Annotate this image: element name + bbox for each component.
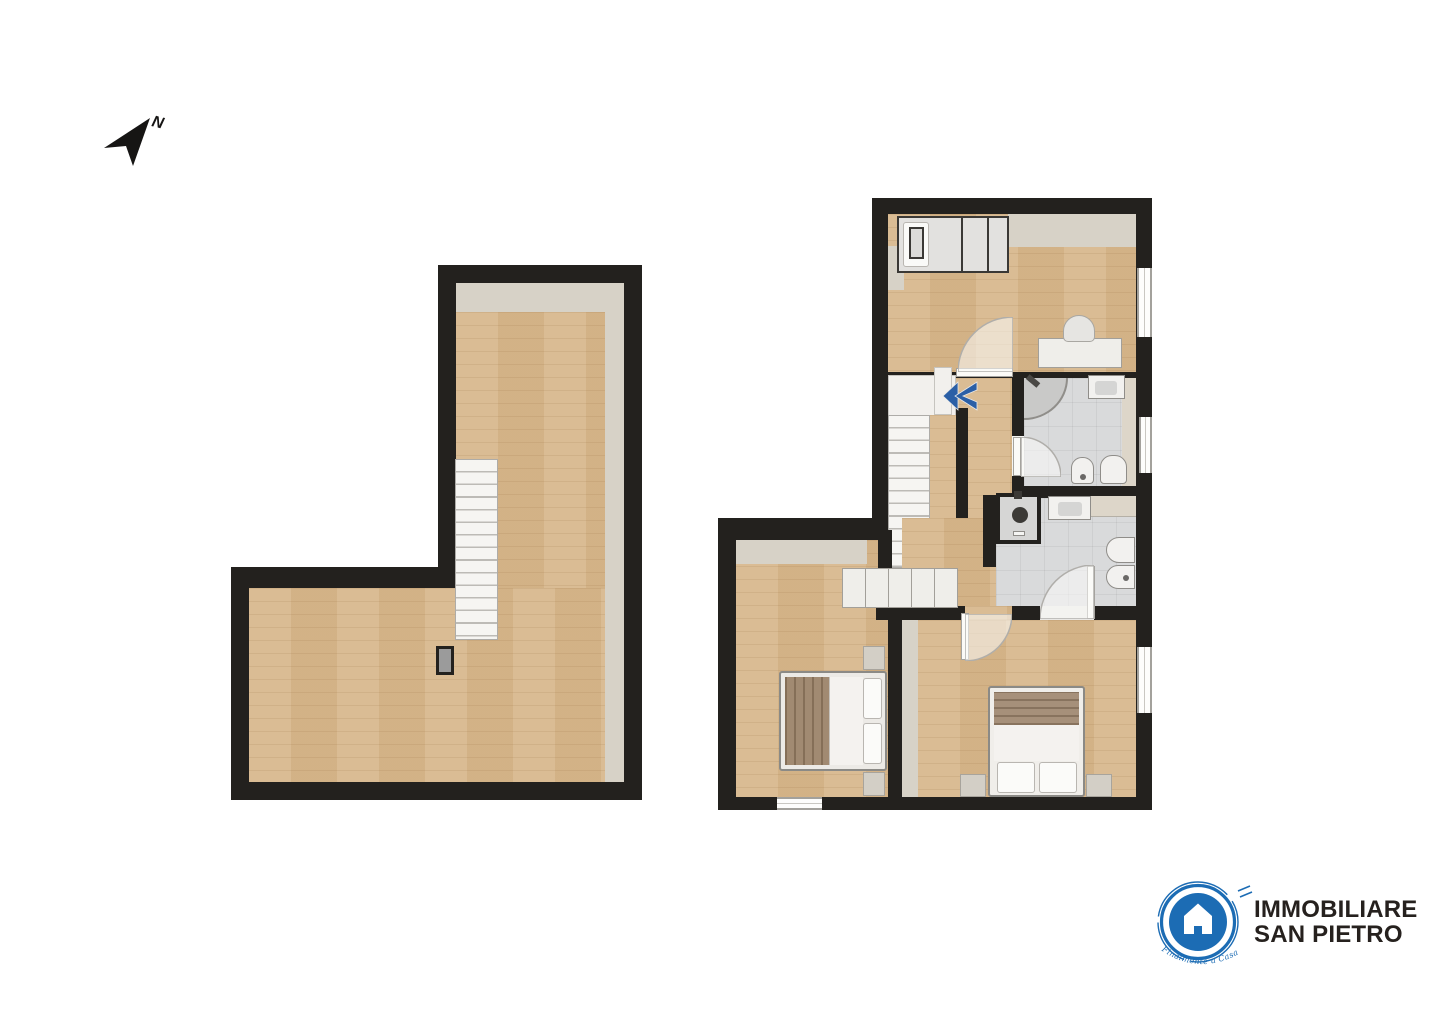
upper-bedroom-ceiling-trim bbox=[1008, 214, 1136, 247]
washbasin bbox=[1048, 496, 1091, 520]
door-arc-bedroom2 bbox=[965, 614, 1012, 661]
agency-name-line2: SAN PIETRO bbox=[1254, 922, 1418, 947]
window-bedroom1 bbox=[777, 797, 822, 810]
bed-blanket bbox=[785, 677, 829, 765]
bidet bbox=[1106, 565, 1135, 589]
door-leaf-bathroom1 bbox=[1013, 437, 1021, 476]
agency-logo: Finalmente a Casa bbox=[1150, 876, 1265, 976]
bed-frame-bar bbox=[987, 218, 989, 271]
toilet bbox=[1106, 537, 1135, 563]
washbasin bbox=[1088, 375, 1125, 399]
north-label: N bbox=[150, 113, 166, 132]
bedroom1-ceiling-trim bbox=[736, 540, 867, 564]
shower-valve bbox=[1014, 491, 1022, 499]
bed-pillow bbox=[997, 762, 1035, 793]
door-arc-bathroom2 bbox=[1040, 565, 1094, 619]
left-plan-staircase bbox=[455, 459, 498, 640]
logo-accent-stroke bbox=[1238, 886, 1250, 891]
bathroom2-left-wall bbox=[983, 495, 996, 567]
window-bathroom1 bbox=[1139, 417, 1152, 473]
bed-duvet bbox=[994, 725, 1079, 761]
bed-pillow bbox=[1039, 762, 1077, 793]
nightstand bbox=[1086, 774, 1112, 797]
left-plan-floor-lower bbox=[249, 588, 605, 782]
double-bed-right bbox=[988, 686, 1085, 797]
bed-pillow bbox=[863, 678, 882, 719]
chimney bbox=[436, 646, 454, 675]
shower-handle bbox=[1013, 531, 1025, 536]
bed-pillow bbox=[863, 723, 882, 764]
washbasin-bowl bbox=[1058, 502, 1082, 516]
house-door bbox=[1194, 926, 1202, 934]
bidet-drain bbox=[1123, 575, 1129, 581]
nightstand bbox=[863, 772, 885, 796]
single-bed bbox=[897, 216, 1009, 273]
bidet-drain bbox=[1080, 474, 1086, 480]
divider-trim bbox=[902, 618, 918, 797]
bed-frame-bar bbox=[961, 218, 963, 271]
wardrobe bbox=[842, 568, 958, 608]
double-bed-left bbox=[779, 671, 887, 771]
shower-head bbox=[1012, 507, 1028, 523]
double-chevron-left-icon bbox=[941, 380, 979, 412]
door-arc-bathroom1 bbox=[1021, 437, 1061, 477]
window-upper-bedroom bbox=[1137, 268, 1152, 337]
bed-blanket bbox=[994, 692, 1079, 725]
bath-counter bbox=[1091, 496, 1136, 517]
desk bbox=[1038, 338, 1122, 368]
floor-plan-page: N bbox=[0, 0, 1440, 1018]
single-bed-headboard bbox=[909, 227, 924, 259]
logo-accent-stroke bbox=[1240, 892, 1252, 897]
nightstand bbox=[960, 774, 986, 797]
window-bedroom2 bbox=[1137, 647, 1152, 713]
bed-duvet bbox=[829, 677, 863, 765]
bedroom1-corner-wall bbox=[878, 530, 892, 568]
door-arc-upper-bedroom bbox=[958, 317, 1013, 372]
toilet bbox=[1100, 455, 1127, 484]
washbasin-bowl bbox=[1095, 381, 1117, 395]
nightstand bbox=[863, 646, 885, 670]
shower-stall bbox=[996, 493, 1041, 544]
wardrobe-wall bbox=[876, 606, 924, 620]
bidet bbox=[1071, 457, 1094, 484]
agency-name-line1: IMMOBILIARE bbox=[1254, 897, 1418, 922]
agency-name: IMMOBILIARE SAN PIETRO bbox=[1254, 897, 1418, 947]
north-arrow-icon: N bbox=[100, 108, 170, 172]
desk-chair bbox=[1063, 315, 1095, 342]
